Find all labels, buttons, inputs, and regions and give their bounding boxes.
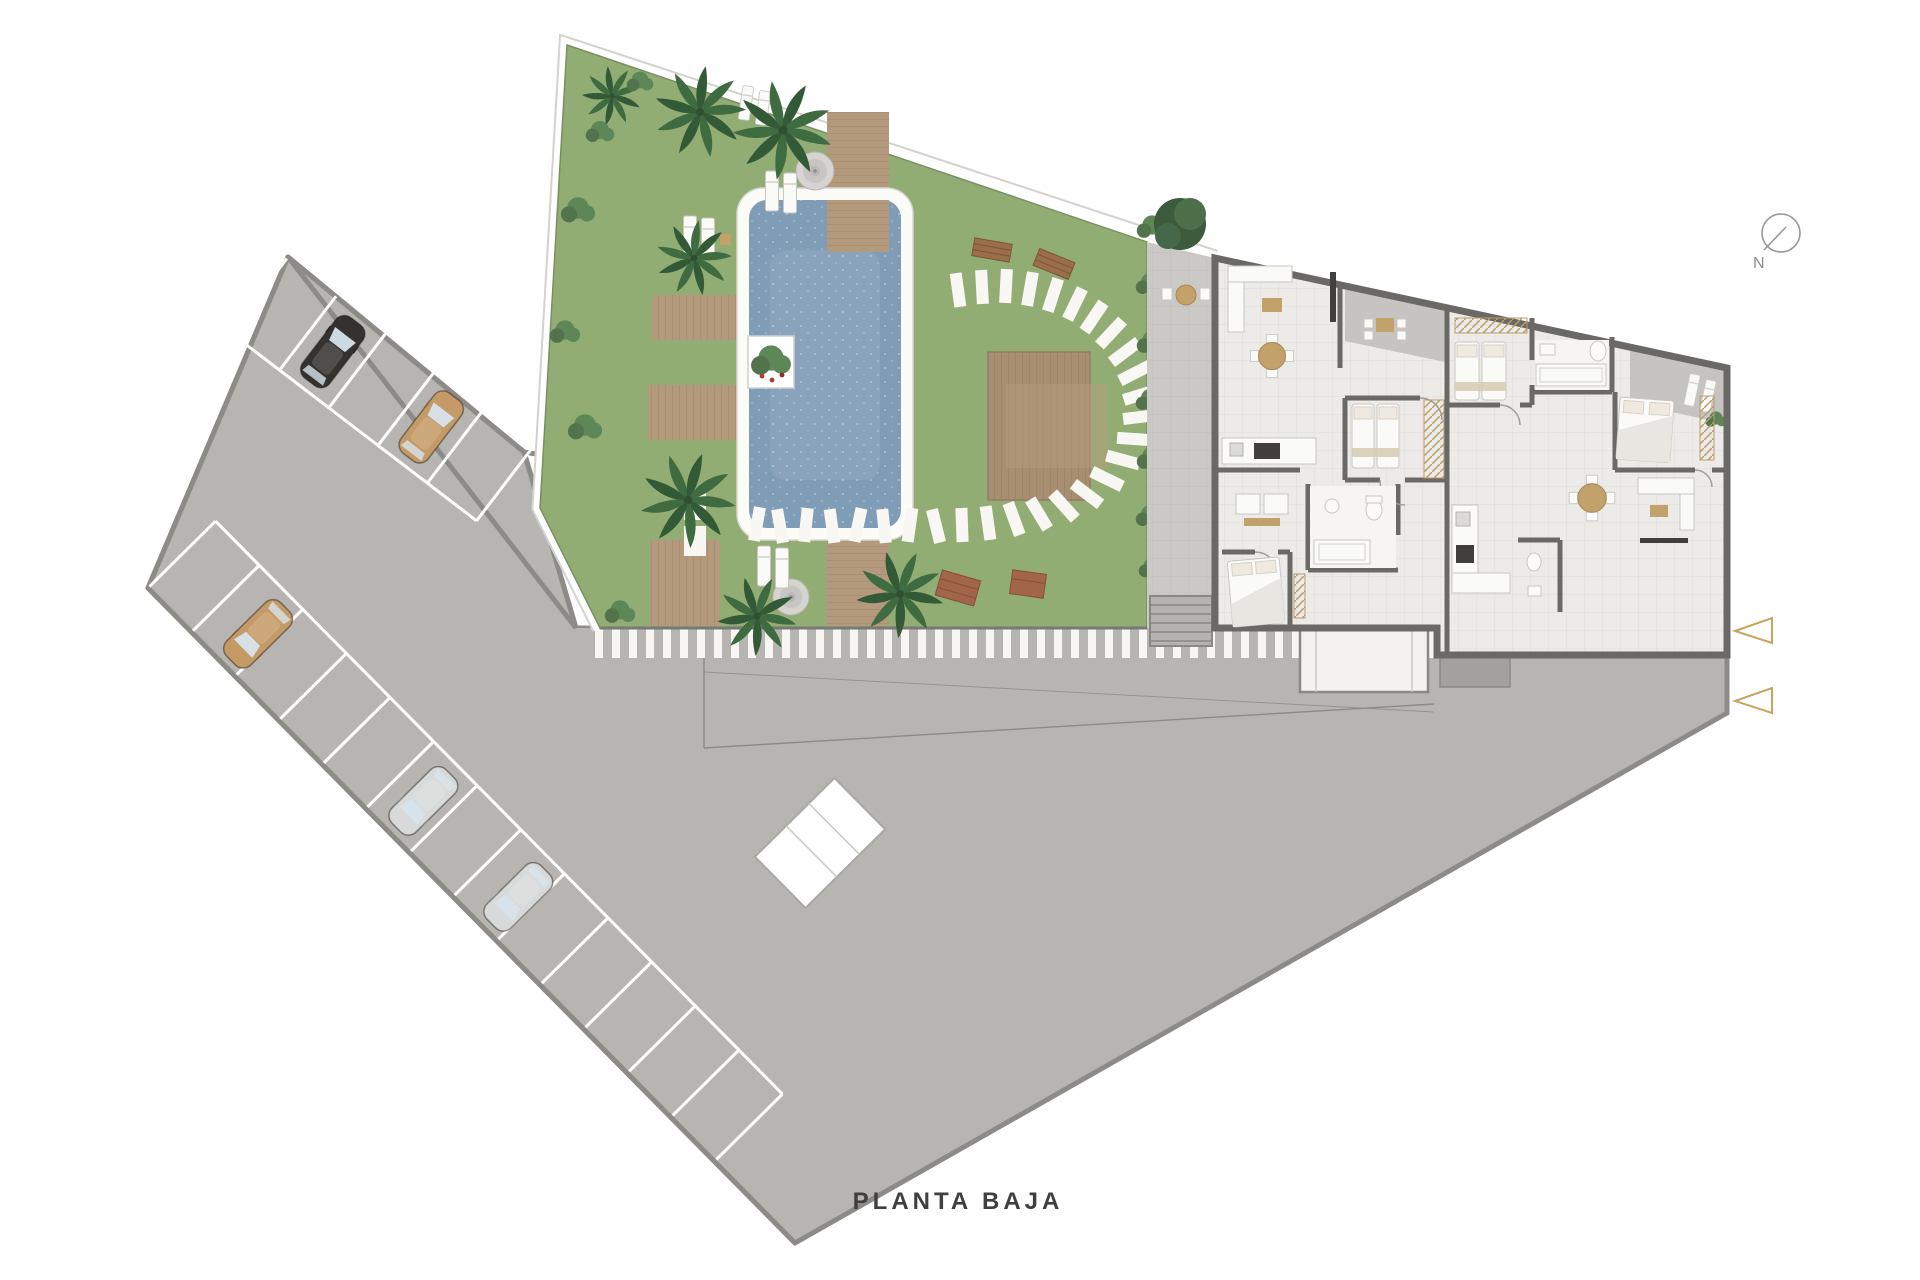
wardrobe bbox=[1455, 318, 1527, 333]
deck-planter bbox=[748, 336, 794, 388]
sun-lounger bbox=[758, 546, 771, 586]
washbasin bbox=[1528, 586, 1541, 596]
sun-lounger bbox=[776, 548, 789, 588]
compass: N bbox=[1753, 214, 1800, 272]
wood-bridge bbox=[827, 200, 889, 252]
washbasin bbox=[1540, 344, 1555, 355]
site-plan-drawing: N bbox=[0, 0, 1920, 1280]
double-bed bbox=[1227, 557, 1285, 627]
washbasin bbox=[1325, 499, 1339, 513]
compass-needle-icon bbox=[1764, 227, 1786, 250]
courtyard-tree bbox=[1154, 198, 1206, 250]
garden bbox=[540, 45, 1215, 672]
toilet bbox=[1590, 341, 1606, 361]
stairs bbox=[1150, 596, 1212, 646]
pergola-deck bbox=[988, 352, 1108, 500]
plan-title: PLANTA BAJA bbox=[853, 1188, 1064, 1216]
apartment-building bbox=[1215, 258, 1727, 655]
north-label: N bbox=[1753, 255, 1765, 272]
bathtub bbox=[1536, 364, 1606, 386]
cooktop bbox=[1254, 443, 1280, 459]
sun-lounger bbox=[784, 173, 797, 213]
wood-deck-pool-bottom bbox=[827, 528, 889, 626]
sofa bbox=[1228, 266, 1292, 282]
side-table bbox=[720, 234, 731, 245]
armchair bbox=[1236, 494, 1260, 514]
coffee-table bbox=[1650, 505, 1668, 517]
wardrobe bbox=[1424, 400, 1444, 478]
side-ramp bbox=[1440, 657, 1510, 687]
double-bed bbox=[1616, 397, 1674, 463]
oven bbox=[1456, 545, 1474, 563]
courtyard bbox=[1147, 198, 1215, 646]
site-plan-page: N PLANTA BAJA bbox=[0, 0, 1920, 1280]
sofa bbox=[1638, 478, 1694, 494]
entry-arrow-icon bbox=[1735, 618, 1772, 643]
sink bbox=[1230, 443, 1243, 456]
entry-arrow-icon bbox=[1735, 688, 1772, 713]
wardrobe bbox=[1700, 396, 1714, 460]
sink bbox=[1456, 512, 1470, 526]
armchair bbox=[1264, 494, 1288, 514]
tv-unit bbox=[1640, 538, 1688, 543]
toilet bbox=[1527, 553, 1541, 571]
tv-unit bbox=[1330, 272, 1336, 322]
wardrobe bbox=[1294, 574, 1305, 618]
coffee-table bbox=[1262, 298, 1282, 312]
planter-bench bbox=[1009, 570, 1046, 598]
